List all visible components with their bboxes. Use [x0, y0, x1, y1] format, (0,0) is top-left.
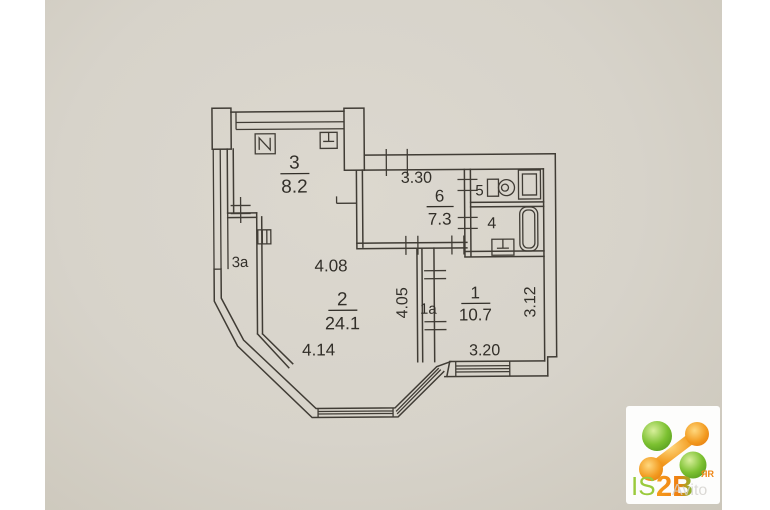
window-kitchen	[236, 111, 344, 129]
window-bay-bottom	[318, 408, 393, 418]
dim-room1-width: 3.20	[469, 342, 500, 359]
room-number: 1	[470, 283, 480, 302]
logo-green-ball-icon	[642, 421, 672, 451]
logo-text-is: IS	[631, 471, 656, 501]
fixtures	[230, 131, 538, 257]
sink-icon	[320, 132, 337, 148]
room-area: 24.1	[325, 313, 360, 333]
room-number: 2	[337, 289, 348, 310]
bathtub-icon	[520, 207, 538, 251]
window-bay-diagonal	[396, 368, 441, 414]
window-left-column	[213, 149, 228, 269]
stove-icon	[255, 134, 275, 154]
room-label-wc: 5	[475, 182, 483, 199]
vent-shaft	[518, 170, 540, 199]
room-area: 8.2	[281, 177, 308, 198]
walls-outline	[212, 106, 557, 418]
room-label-kitchen: 3 8.2	[280, 153, 309, 198]
logo-orange-ball-icon	[685, 422, 709, 446]
room-label-hall: 6 7.3	[426, 187, 453, 229]
dim-living-top: 4.08	[314, 256, 347, 275]
room-number: 6	[435, 187, 445, 206]
room-label-living: 2 24.1	[325, 289, 360, 333]
toilet-icon	[487, 179, 514, 196]
room-label-balcony: 3a	[232, 254, 249, 271]
photo-canvas: 3 8.2 6 7.3 1 10.7 2 24.1	[0, 0, 770, 510]
room-label-bathroom: 4	[487, 215, 496, 232]
dim-closet-height: 4.05	[394, 287, 411, 318]
wall-stub	[337, 196, 357, 203]
room-area: 10.7	[459, 305, 492, 324]
dim-hall-width: 3.30	[401, 170, 432, 187]
room-number: 3	[289, 153, 300, 174]
dim-living-bottom: 4.14	[302, 340, 335, 359]
logo-text-small: ЯR	[701, 469, 714, 479]
window-room1	[456, 361, 510, 376]
is2b-logo: IS 2B ЯR Avito	[626, 406, 720, 504]
room-area: 7.3	[428, 210, 452, 229]
hall-door-ticks	[406, 235, 464, 254]
room-label-room1: 1 10.7	[459, 283, 492, 324]
dim-room1-height: 3.12	[522, 286, 539, 317]
washbasin-icon	[492, 239, 514, 255]
pillar	[212, 108, 231, 149]
balcony-small-window	[258, 230, 271, 244]
avito-watermark: Avito	[672, 482, 707, 499]
room-label-closet: 1a	[420, 301, 437, 318]
